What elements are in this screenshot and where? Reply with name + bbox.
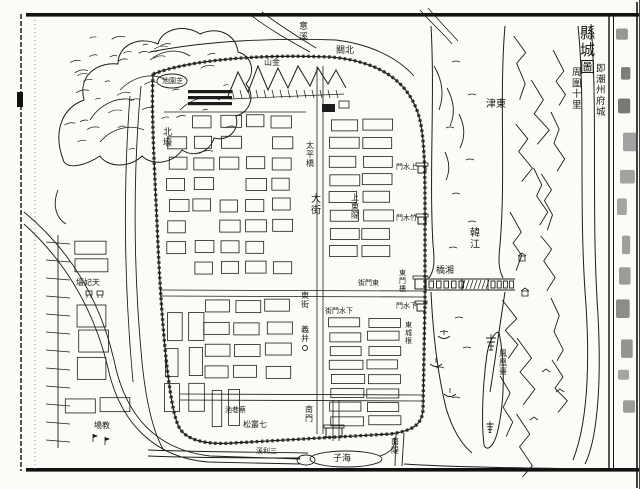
- city-block: [189, 348, 202, 376]
- water-ripple: [468, 94, 476, 95]
- city-block: [219, 157, 238, 169]
- water-ripple: [452, 397, 460, 398]
- top-rule: [26, 13, 639, 17]
- city-block: [367, 360, 397, 369]
- city-block: [193, 199, 211, 211]
- city-block: [100, 398, 130, 412]
- map-label: 子海: [333, 452, 351, 464]
- city-block: [212, 391, 222, 427]
- house-icon: [521, 288, 529, 296]
- city-block: [364, 210, 394, 221]
- map-label: 場教: [94, 420, 110, 430]
- city-block: [331, 417, 364, 426]
- map-label: 池園芝: [162, 76, 183, 85]
- water-ripple: [466, 159, 474, 160]
- map-label: 南隄: [391, 436, 399, 455]
- city-block: [272, 158, 291, 170]
- city-block: [271, 116, 291, 128]
- north-pavilion: [322, 104, 335, 112]
- water-ripple: [463, 347, 471, 348]
- city-block: [194, 178, 213, 190]
- city-block: [369, 416, 401, 425]
- water-ripple: [436, 367, 444, 368]
- city-block: [331, 374, 364, 383]
- page-frame: [17, 0, 640, 489]
- map-label: 大街: [311, 192, 321, 216]
- map-label: 關北: [336, 45, 354, 56]
- city-block: [221, 115, 242, 127]
- map-label: 街門水下: [325, 306, 353, 315]
- map-label: 太平橋: [306, 140, 314, 168]
- city-block: [330, 347, 361, 356]
- gate-icon: [413, 276, 428, 289]
- city-block: [246, 241, 264, 253]
- city-block: [369, 347, 401, 356]
- flag-icon: [93, 434, 98, 442]
- bridge-pier: [491, 281, 495, 288]
- city-block: [169, 200, 189, 212]
- map-label: 池巷蔡: [225, 405, 246, 414]
- map-label: 門木竹: [396, 213, 417, 222]
- water-ripple: [468, 221, 476, 222]
- bridge-pier: [452, 281, 457, 288]
- city-block: [79, 330, 109, 352]
- city-block: [362, 246, 390, 257]
- city-block: [267, 322, 292, 334]
- city-block: [368, 375, 400, 384]
- barracks-bar: [188, 90, 232, 93]
- city-block: [167, 242, 186, 254]
- map-label: 義井: [301, 324, 309, 343]
- city-block: [205, 344, 230, 356]
- gate-icon: [416, 214, 428, 224]
- city-block: [234, 365, 257, 377]
- north-ridge: [228, 66, 346, 99]
- map-label: 東街: [301, 290, 309, 309]
- city-block: [193, 116, 212, 128]
- city-block: [235, 345, 261, 357]
- ink-smudge: [621, 339, 633, 358]
- xiangzi-bridge: [425, 279, 515, 290]
- bridge-pier: [444, 281, 449, 288]
- gate-icon: [416, 163, 428, 173]
- map-label: 韓江: [470, 227, 480, 250]
- city-block: [273, 198, 291, 210]
- city-block: [330, 228, 359, 239]
- city-block: [329, 318, 360, 327]
- boat-icon: [438, 330, 450, 339]
- map-title-main: 縣城圖: [580, 24, 595, 76]
- city-block: [189, 312, 204, 340]
- map-label: 門水上: [396, 162, 417, 171]
- altar-icon: [97, 291, 103, 298]
- map-label: 壇妃天: [76, 277, 100, 287]
- bridge-pier: [503, 281, 507, 288]
- map-title-sub: 即潮州府城: [596, 64, 606, 118]
- city-block: [331, 389, 364, 398]
- ink-smudge: [620, 170, 635, 184]
- city-block: [272, 178, 289, 190]
- city-block: [246, 200, 264, 212]
- bridge-pier: [510, 281, 514, 288]
- city-block: [246, 220, 267, 232]
- city-block: [330, 175, 360, 186]
- adjacent-page-ink: [616, 29, 638, 413]
- city-block: [329, 156, 356, 167]
- city-block: [273, 219, 293, 231]
- flag-icon: [105, 437, 110, 445]
- city-block: [77, 357, 106, 379]
- map-label: 橋湘: [436, 264, 454, 276]
- city-block: [330, 333, 361, 342]
- ink-smudge: [621, 67, 630, 79]
- map-label: 東門樓: [399, 268, 406, 293]
- city-block: [246, 179, 267, 191]
- city-block: [195, 262, 213, 274]
- ink-smudge: [617, 198, 627, 215]
- city-block: [265, 343, 291, 355]
- ink-smudge: [619, 267, 631, 284]
- barracks-bar: [188, 96, 232, 99]
- city-block: [167, 313, 182, 341]
- city-block: [273, 262, 291, 274]
- map-label: 鳳凰臺: [499, 349, 507, 376]
- city-block: [195, 240, 214, 252]
- city-block: [220, 200, 237, 212]
- map-label: 上東隄: [351, 193, 359, 220]
- city-block: [330, 246, 358, 257]
- water-ripple: [446, 127, 454, 128]
- city-streets: [160, 66, 424, 441]
- ink-smudge: [618, 370, 629, 380]
- bridge-pier: [497, 281, 501, 288]
- city-block: [367, 389, 399, 398]
- city-block: [220, 220, 240, 232]
- map-label: 松叢七: [243, 419, 267, 429]
- boat-icon: [444, 388, 456, 397]
- ink-smudge: [616, 299, 630, 318]
- map-label: 山金: [264, 57, 280, 67]
- map-label: 街門東: [358, 278, 379, 287]
- map-label: 東城根: [405, 320, 412, 345]
- map-label: 北壕: [163, 127, 172, 148]
- water-marks: [430, 61, 564, 420]
- city-block: [273, 137, 293, 149]
- city-block: [77, 305, 106, 327]
- wall-crenellation: [152, 56, 425, 443]
- city-block: [234, 323, 259, 335]
- well-icon: [303, 346, 308, 351]
- city-block: [362, 228, 390, 239]
- city-wall: [152, 56, 425, 443]
- map-label: 意溪: [299, 20, 308, 42]
- ink-smudge: [622, 236, 630, 255]
- city-block: [331, 120, 357, 131]
- city-block: [236, 301, 261, 313]
- city-block: [369, 318, 401, 327]
- city-block: [204, 322, 229, 334]
- city-block: [329, 360, 363, 369]
- ink-smudge: [623, 133, 638, 152]
- city-block: [194, 158, 214, 170]
- city-block: [265, 299, 290, 311]
- water-ripple: [449, 247, 457, 248]
- city-blocks: [46, 90, 401, 442]
- map-label: 津東: [486, 97, 506, 110]
- pagoda-icon: [487, 421, 494, 432]
- city-block: [330, 402, 361, 411]
- ink-smudge: [616, 29, 628, 40]
- map-title: 縣城圖即潮州府城周圍十里: [572, 24, 606, 118]
- city-block: [362, 174, 392, 185]
- city-block: [75, 259, 108, 272]
- water-ripple: [452, 61, 460, 62]
- north-shrine: [339, 101, 349, 108]
- city-block: [368, 331, 400, 340]
- pagoda-icon: [486, 334, 496, 350]
- city-block: [246, 261, 266, 273]
- house-icon: [518, 253, 526, 261]
- city-block: [246, 115, 263, 127]
- ponds: [157, 74, 394, 467]
- city-block: [75, 241, 106, 254]
- city-block: [364, 156, 393, 167]
- map-title-sub: 周圍十里: [572, 68, 582, 111]
- binding-mark: [17, 92, 23, 107]
- boat-icon: [430, 358, 442, 367]
- city-block: [189, 383, 205, 411]
- city-block: [363, 119, 393, 130]
- city-block: [221, 241, 239, 253]
- map-label: 溪利三: [256, 446, 277, 455]
- water-ripple: [452, 193, 460, 194]
- city-block: [167, 178, 185, 190]
- bridge-pier: [429, 281, 434, 288]
- water-ripple: [455, 317, 463, 318]
- northeast-hill-strokes: [434, 66, 464, 180]
- map-canvas: 意溪關北津東北壕山金池園芝韓江橋湘鳳凰臺門水上門木竹東門樓門水下街門東街門水下太…: [0, 0, 640, 489]
- map-label: 南門: [305, 404, 313, 423]
- city-block: [363, 138, 392, 149]
- city-block: [246, 157, 264, 169]
- barracks-bar: [188, 102, 232, 105]
- city-block: [363, 191, 390, 202]
- city-block: [367, 403, 398, 412]
- map-label: 門水下: [396, 301, 417, 310]
- city-block: [221, 261, 238, 273]
- bridge-pier: [437, 281, 442, 288]
- city-block: [205, 366, 228, 378]
- city-block: [205, 300, 229, 312]
- reed-mark: [542, 369, 550, 372]
- city-block: [168, 221, 186, 233]
- ink-smudge: [618, 98, 630, 113]
- scanned-map-page: 意溪關北津東北壕山金池園芝韓江橋湘鳳凰臺門水上門木竹東門樓門水下街門東街門水下太…: [0, 0, 640, 489]
- ink-smudge: [623, 400, 635, 413]
- city-block: [266, 366, 291, 378]
- city-block: [329, 137, 359, 148]
- reed-mark: [530, 417, 538, 420]
